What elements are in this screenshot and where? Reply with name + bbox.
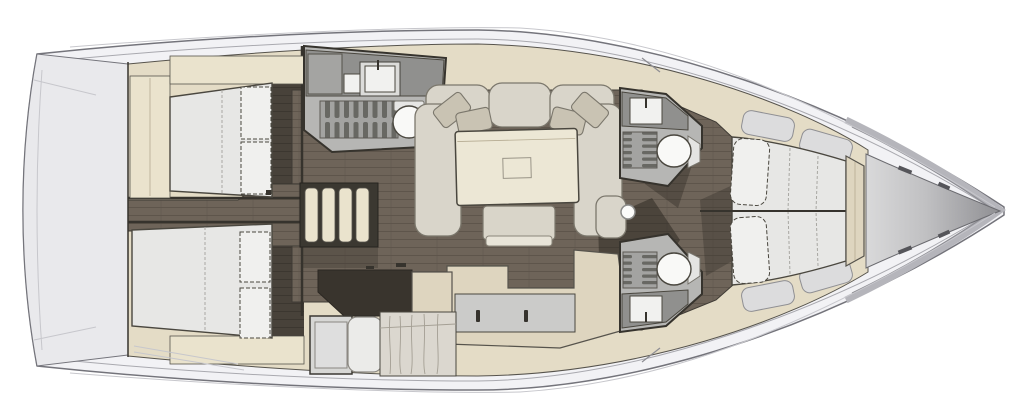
toilet [657,253,691,285]
locker [308,54,342,94]
sofa-arm-bulge [596,196,626,238]
stern-deck [23,54,128,366]
sofa-back-cushion [489,83,551,127]
shelf-band [170,336,304,364]
shower-grate [623,252,657,288]
shower-grate [320,101,398,138]
quilt-panel [240,232,270,282]
quilt-panel [241,87,271,139]
locker-handle [524,310,528,322]
step-tread [305,188,318,242]
step-tread [356,188,369,242]
mast-foot [621,205,635,219]
saloon-bench [483,206,555,240]
sink-basin [365,66,395,92]
vberth-pillow [730,138,771,206]
vberth-pillow [730,216,771,284]
yacht-floorplan [0,0,1024,420]
toilet [657,135,691,167]
berth-duvet [380,312,456,376]
quilt-panel [241,142,271,194]
yacht-floorplan-stage [0,0,1024,420]
step-tread [322,188,335,242]
soap-box [344,74,360,93]
galley-counter [455,294,575,332]
shower-grate [623,132,657,168]
berth-pillow [348,317,382,372]
saloon-table [455,128,579,205]
saloon [415,83,626,246]
alcove-column [412,272,452,316]
shelf-band [170,56,304,84]
saloon-bench-base [486,236,552,246]
quilt-panel [240,288,270,338]
companionway-steps [300,183,378,247]
locker-handle [476,310,480,322]
step-tread [339,188,352,242]
mid-berth-starboard [310,263,456,376]
